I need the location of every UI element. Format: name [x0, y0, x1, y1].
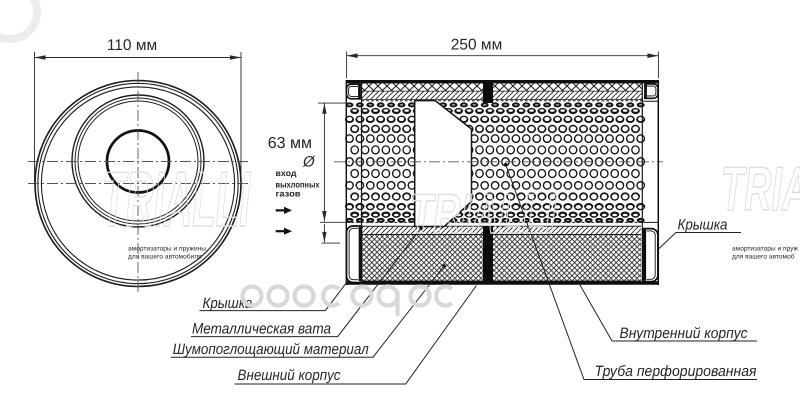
svg-text:Ø: Ø: [302, 154, 316, 171]
svg-text:для вашего автомоб: для вашего автомоб: [732, 254, 795, 261]
svg-text:63 мм: 63 мм: [268, 135, 312, 152]
svg-text:Шумопоглощающий материал: Шумопоглощающий материал: [173, 341, 369, 358]
svg-text:Крышка: Крышка: [678, 217, 728, 234]
svg-text:TRIALLI: TRIALLI: [410, 182, 557, 245]
svg-text:Внутренний корпус: Внутренний корпус: [620, 325, 748, 342]
svg-text:вход: вход: [276, 168, 298, 178]
svg-text:Внешний корпус: Внешний корпус: [238, 367, 341, 384]
svg-text:амортизаторы и пруж: амортизаторы и пруж: [732, 246, 799, 253]
svg-text:амортизаторы и пружины: амортизаторы и пружины: [128, 246, 206, 253]
svg-text:газов: газов: [276, 189, 301, 199]
svg-text:Труба перфорированная: Труба перфорированная: [595, 363, 757, 380]
svg-text:для вашего автомобиля: для вашего автомобиля: [128, 254, 202, 261]
svg-text:TRIALLI: TRIALLI: [102, 155, 251, 243]
svg-text:TRIALLI: TRIALLI: [721, 155, 800, 224]
svg-text:Металлическая вата: Металлическая вата: [192, 321, 331, 338]
svg-text:110 мм: 110 мм: [107, 37, 157, 54]
svg-text:250 мм: 250 мм: [451, 37, 502, 54]
